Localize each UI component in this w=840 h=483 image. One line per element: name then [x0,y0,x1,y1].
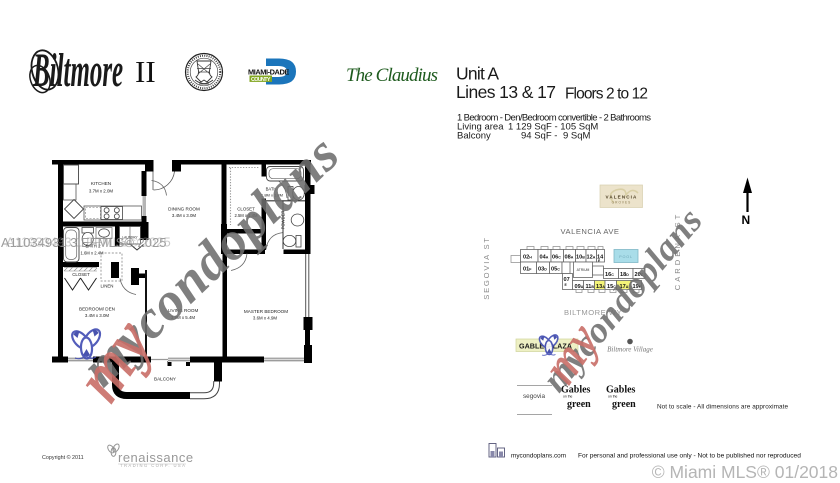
svg-text:1.6M x 2.4M: 1.6M x 2.4M [80,251,104,256]
svg-text:KITCHEN: KITCHEN [91,181,111,186]
svg-text:GROVES: GROVES [612,201,632,205]
svg-text:MASTER BEDROOM: MASTER BEDROOM [244,309,288,314]
svg-text:MIAMI-DADE: MIAMI-DADE [248,68,289,77]
svg-text:Floors 2 to 12: Floors 2 to 12 [565,86,648,103]
svg-text:Balcony: Balcony [457,131,491,142]
svg-text:3.6M x 4.9M: 3.6M x 4.9M [253,316,277,321]
svg-text:DINING ROOM: DINING ROOM [168,207,200,212]
svg-text:green: green [612,399,636,410]
svg-text:segovia: segovia [523,393,545,400]
svg-text:II: II [135,54,156,89]
svg-text:The Claudius: The Claudius [346,65,438,86]
svg-text:N: N [742,213,751,227]
svg-text:3.7M x 2.0M: 3.7M x 2.0M [89,189,113,194]
svg-text:© Miami MLS® 01/2018: © Miami MLS® 01/2018 [652,462,838,482]
svg-text:For personal and professional: For personal and professional use only -… [578,453,801,460]
svg-text:on the: on the [608,395,618,399]
svg-text:CLOSET: CLOSET [72,272,90,277]
svg-text:9 SqM: 9 SqM [563,131,591,142]
svg-text:ATRIUM: ATRIUM [577,268,590,272]
svg-text:BALCONY: BALCONY [154,377,176,382]
svg-text:Lines 13 & 17: Lines 13 & 17 [456,82,556,102]
svg-text:VALENCIA: VALENCIA [606,195,638,200]
svg-text:LINEN: LINEN [101,284,114,289]
svg-text:3.4M x 3.0M: 3.4M x 3.0M [172,213,196,218]
svg-text:green: green [567,399,591,410]
svg-text:Not to scale - All dimensions: Not to scale - All dimensions are approx… [657,404,788,411]
svg-text:mycondoplans.com: mycondoplans.com [511,453,566,460]
svg-text:Biltmore Village: Biltmore Village [607,346,653,354]
svg-text:94 SqF -: 94 SqF - [521,131,557,142]
svg-text:Unit A: Unit A [456,64,499,84]
svg-text:VALENCIA AVE: VALENCIA AVE [561,227,620,236]
svg-text:A11933493 1 FFMLS© 2025: A11933493 1 FFMLS© 2025 [6,235,171,250]
svg-text:Copyright © 2011: Copyright © 2011 [42,454,84,461]
svg-text:COUNTY: COUNTY [251,77,271,83]
svg-text:SEGOVIA ST: SEGOVIA ST [482,236,491,300]
